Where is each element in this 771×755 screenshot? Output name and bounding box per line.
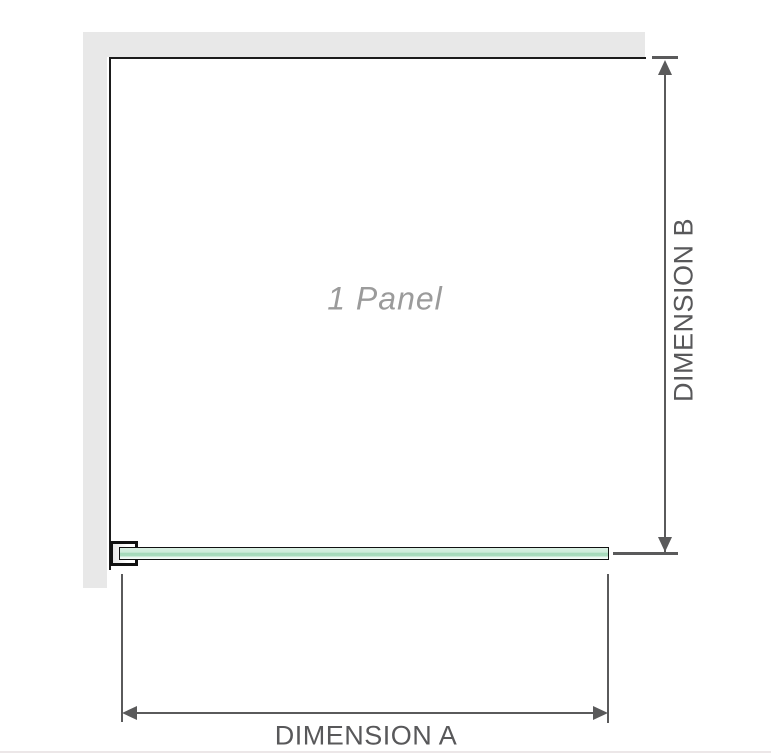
dimension-a-arrow-left-icon	[122, 706, 137, 720]
glass-panel-bar	[119, 547, 609, 560]
panel-top-edge-line	[110, 57, 646, 59]
dimension-a-arrow-right-icon	[593, 706, 608, 720]
dimension-b-top-tick	[652, 56, 678, 59]
shower-panel-diagram: DIMENSION B DIMENSION A 1 Panel	[0, 0, 771, 755]
dimension-b-arrow-down-icon	[658, 537, 672, 552]
bottom-divider-line	[0, 751, 771, 753]
dimension-a-right-extension-line	[607, 574, 609, 723]
dimension-a-left-extension-line	[121, 574, 123, 722]
panel-count-label: 1 Panel	[327, 281, 443, 318]
dimension-b-bottom-tick	[613, 552, 678, 555]
dimension-b-line	[664, 62, 666, 552]
dimension-a-label: DIMENSION A	[275, 721, 458, 752]
wall-left-strip	[83, 32, 107, 588]
wall-top-strip	[83, 32, 645, 57]
dimension-a-line	[125, 712, 605, 714]
dimension-b-label: DIMENSION B	[669, 218, 700, 402]
panel-left-edge-line	[109, 57, 111, 570]
dimension-b-arrow-up-icon	[658, 60, 672, 75]
